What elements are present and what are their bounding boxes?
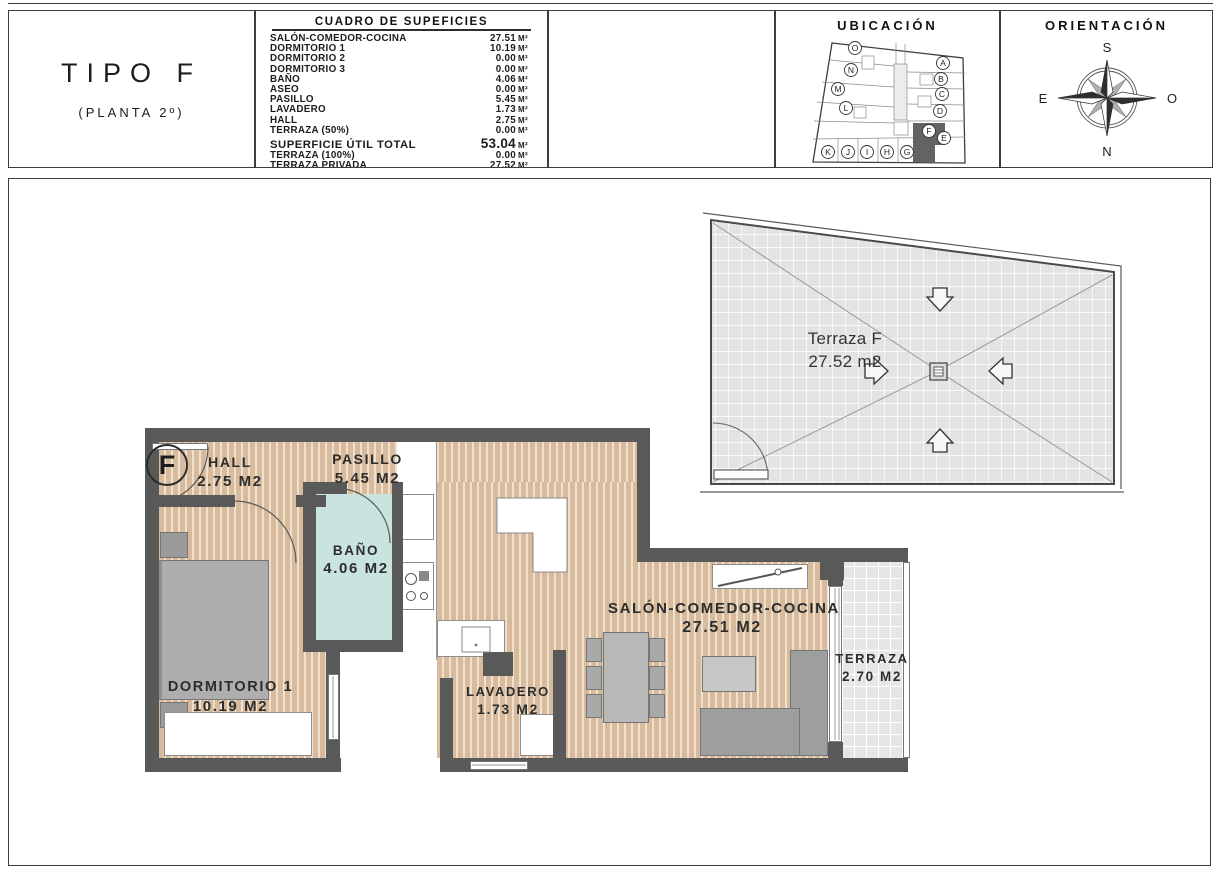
room-label-bano: BAÑO 4.06 M2 [306,542,406,578]
type-title: TIPO F [61,58,202,89]
room-area: 27.51 M2 [608,618,836,638]
room-name: LAVADERO [452,684,564,701]
roof-terrace-area: 27.52 m2 [775,351,915,374]
row-unit: M² [516,34,535,44]
roof-terrace-name: Terraza F [775,328,915,351]
stove-burners-icon [406,571,430,601]
compass-cardinal-points [1058,60,1156,136]
compass-east-label: E [1039,91,1048,106]
drain-icon [930,363,947,380]
surfaces-title: CUADRO DE SUPEFICIES [272,16,531,31]
row-unit: M² [516,95,535,105]
room-name: PASILLO [305,451,430,469]
room-name: SALÓN-COMEDOR-COCINA [608,599,836,618]
row-label: TERRAZA (50%) [270,126,474,136]
structural-column [497,498,567,572]
row-label: BAÑO [270,75,474,85]
tv-icon [718,568,802,586]
row-unit: M² [516,116,535,126]
room-label-dormitorio: DORMITORIO 1 10.19 M2 [148,678,313,716]
empty-header-box [548,10,775,168]
room-label-pasillo: PASILLO 5.45 M2 [305,451,430,488]
row-value: 0.00 [474,126,516,136]
room-name: DORMITORIO 1 [148,678,313,697]
row-unit: M² [516,75,535,85]
row-label: TERRAZA PRIVADA [270,161,474,167]
row-unit: M² [516,151,535,161]
unit-letter: J [846,147,850,157]
unit-letter: G [904,147,911,157]
compass-north-label: N [1102,144,1111,159]
row-label: LAVADERO [270,105,474,115]
unit-letter: D [937,106,943,116]
row-value: 27.52 [474,161,516,167]
unit-letter: E [941,133,947,143]
room-name: BAÑO [306,542,406,559]
row-label: DORMITORIO 3 [270,65,474,75]
unit-letter: O [852,43,859,53]
total-label: SUPERFICIE ÚTIL TOTAL [270,140,474,150]
row-unit: M² [516,126,535,136]
sheet-top-border [8,3,1213,4]
unit-letter: I [866,147,868,157]
floor-plan-sheet: TIPO F (PLANTA 2º) CUADRO DE SUPEFICIES … [0,0,1221,877]
type-box: TIPO F (PLANTA 2º) [8,10,255,168]
type-subtitle: (PLANTA 2º) [78,105,184,120]
site-plan: O N M L A B C D E F K J I H G [800,30,975,165]
row-unit: M² [516,105,535,115]
sink-icon [462,627,490,652]
roof-terrace-label: Terraza F 27.52 m2 [775,328,915,374]
room-label-salon: SALÓN-COMEDOR-COCINA 27.51 M2 [608,599,836,639]
total-value: 53.04 [474,139,516,149]
table-row: TERRAZA (50%)0.00M² [270,126,535,136]
room-label-lavadero: LAVADERO 1.73 M2 [452,684,564,719]
unit-letter: A [940,58,946,68]
room-name: TERRAZA [824,651,920,668]
unit-letter: K [825,147,831,157]
row-unit: M² [516,54,535,64]
unit-letter: C [939,89,945,99]
surfaces-table-box: CUADRO DE SUPEFICIES SALÓN-COMEDOR-COCIN… [255,10,548,168]
row-unit: M² [516,141,535,151]
room-area: 1.73 M2 [452,701,564,719]
room-name: HALL [170,454,290,472]
room-area: 2.70 M2 [824,668,920,685]
unit-letter: N [848,65,854,75]
row-unit: M² [516,161,535,167]
room-area: 4.06 M2 [306,559,406,578]
unit-letter: L [844,103,849,113]
row-unit: M² [516,85,535,95]
compass-rose-icon: S N E O [1030,38,1185,160]
compass-west-label: O [1167,91,1177,106]
unit-letter-f: F [926,126,931,136]
unit-letter: B [938,74,944,84]
surfaces-table: CUADRO DE SUPEFICIES SALÓN-COMEDOR-COCIN… [256,11,547,167]
room-area: 5.45 M2 [305,469,430,488]
row-unit: M² [516,44,535,54]
unit-letter: H [884,147,890,157]
room-area: 2.75 M2 [170,472,290,491]
row-unit: M² [516,65,535,75]
room-area: 10.19 M2 [148,697,313,716]
room-label-hall: HALL 2.75 M2 [170,454,290,491]
unit-letter: M [834,84,841,94]
compass-south-label: S [1103,40,1112,55]
table-row: TERRAZA PRIVADA27.52M² [270,161,535,167]
room-label-terraza: TERRAZA 2.70 M2 [824,651,920,685]
orientacion-title: ORIENTACIÓN [1001,18,1212,33]
